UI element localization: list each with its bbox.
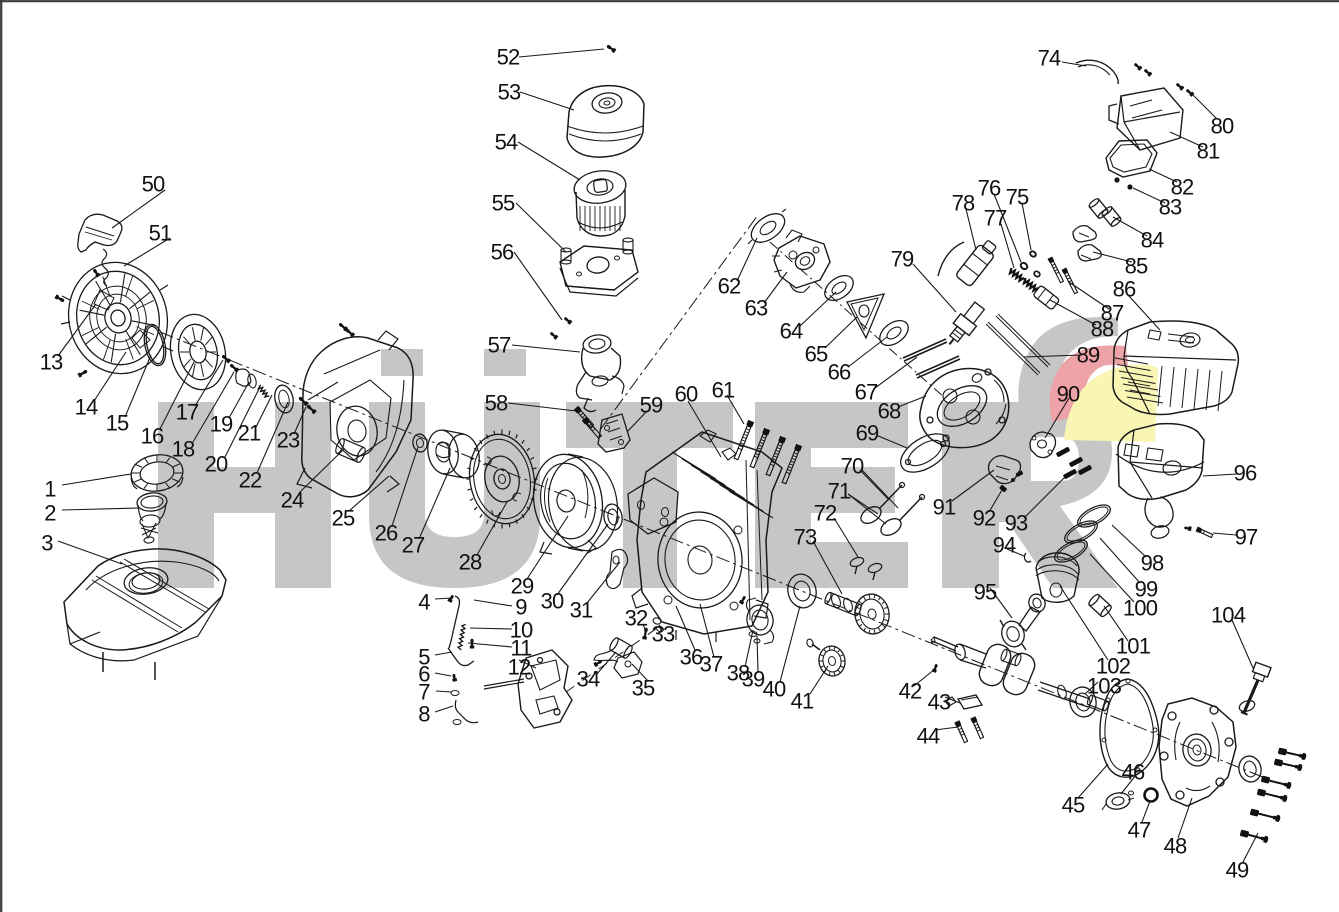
svg-text:57: 57 xyxy=(488,333,511,358)
svg-text:92: 92 xyxy=(973,506,996,531)
svg-text:78: 78 xyxy=(952,191,975,216)
svg-text:3: 3 xyxy=(41,531,53,556)
svg-text:89: 89 xyxy=(1077,343,1100,368)
svg-text:1: 1 xyxy=(44,477,56,502)
svg-text:33: 33 xyxy=(652,622,675,647)
svg-text:46: 46 xyxy=(1122,760,1145,785)
svg-text:29: 29 xyxy=(511,574,534,599)
svg-text:31: 31 xyxy=(570,598,593,623)
svg-text:100: 100 xyxy=(1123,596,1158,621)
svg-text:95: 95 xyxy=(974,580,997,605)
svg-text:80: 80 xyxy=(1211,114,1234,139)
svg-text:14: 14 xyxy=(75,395,98,420)
svg-text:32: 32 xyxy=(625,606,648,631)
svg-text:43: 43 xyxy=(928,690,951,715)
svg-text:77: 77 xyxy=(984,206,1007,231)
svg-text:41: 41 xyxy=(791,689,814,714)
svg-text:72: 72 xyxy=(814,501,837,526)
svg-text:34: 34 xyxy=(577,667,600,692)
svg-text:28: 28 xyxy=(459,550,482,575)
svg-text:21: 21 xyxy=(238,421,261,446)
svg-text:16: 16 xyxy=(141,424,164,449)
svg-text:42: 42 xyxy=(899,679,922,704)
svg-text:22: 22 xyxy=(239,468,262,493)
svg-text:49: 49 xyxy=(1226,858,1249,883)
svg-text:8: 8 xyxy=(418,702,430,727)
svg-text:63: 63 xyxy=(745,296,768,321)
svg-text:73: 73 xyxy=(794,525,817,550)
svg-text:27: 27 xyxy=(402,533,425,558)
svg-text:25: 25 xyxy=(332,506,355,531)
svg-text:83: 83 xyxy=(1159,195,1182,220)
svg-text:59: 59 xyxy=(640,393,663,418)
svg-text:55: 55 xyxy=(492,191,515,216)
svg-text:2: 2 xyxy=(44,501,56,526)
svg-text:64: 64 xyxy=(780,319,803,344)
svg-text:4: 4 xyxy=(418,590,430,615)
svg-text:103: 103 xyxy=(1087,674,1122,699)
svg-text:90: 90 xyxy=(1057,382,1080,407)
svg-text:75: 75 xyxy=(1006,185,1029,210)
svg-text:40: 40 xyxy=(763,677,786,702)
svg-text:67: 67 xyxy=(855,380,878,405)
svg-text:24: 24 xyxy=(281,488,304,513)
svg-text:85: 85 xyxy=(1125,254,1148,279)
svg-text:76: 76 xyxy=(978,176,1001,201)
svg-text:69: 69 xyxy=(856,421,879,446)
svg-text:62: 62 xyxy=(718,274,741,299)
svg-text:18: 18 xyxy=(172,437,195,462)
svg-text:30: 30 xyxy=(541,589,564,614)
svg-text:61: 61 xyxy=(712,378,735,403)
svg-text:97: 97 xyxy=(1235,525,1258,550)
svg-text:96: 96 xyxy=(1234,461,1257,486)
svg-text:94: 94 xyxy=(993,533,1016,558)
svg-text:104: 104 xyxy=(1211,603,1246,628)
svg-text:58: 58 xyxy=(485,391,508,416)
svg-text:50: 50 xyxy=(142,172,165,197)
svg-text:66: 66 xyxy=(828,360,851,385)
svg-text:54: 54 xyxy=(495,130,518,155)
svg-text:65: 65 xyxy=(805,342,828,367)
svg-text:81: 81 xyxy=(1197,139,1220,164)
svg-text:48: 48 xyxy=(1164,834,1187,859)
svg-text:56: 56 xyxy=(491,240,514,265)
svg-text:51: 51 xyxy=(149,221,172,246)
svg-text:26: 26 xyxy=(375,521,398,546)
svg-text:19: 19 xyxy=(210,412,233,437)
svg-text:98: 98 xyxy=(1141,551,1164,576)
svg-text:91: 91 xyxy=(933,495,956,520)
svg-text:74: 74 xyxy=(1038,46,1061,71)
svg-text:39: 39 xyxy=(742,667,765,692)
svg-text:44: 44 xyxy=(917,724,940,749)
svg-text:60: 60 xyxy=(675,382,698,407)
svg-text:88: 88 xyxy=(1091,317,1114,342)
svg-text:68: 68 xyxy=(878,399,901,424)
svg-text:52: 52 xyxy=(497,45,520,70)
svg-text:13: 13 xyxy=(40,350,63,375)
svg-text:86: 86 xyxy=(1113,277,1136,302)
svg-text:70: 70 xyxy=(841,454,864,479)
svg-text:20: 20 xyxy=(205,452,228,477)
svg-text:84: 84 xyxy=(1141,228,1164,253)
svg-text:53: 53 xyxy=(498,80,521,105)
svg-text:12: 12 xyxy=(508,655,531,680)
svg-text:45: 45 xyxy=(1062,793,1085,818)
svg-text:37: 37 xyxy=(700,652,723,677)
svg-text:47: 47 xyxy=(1128,818,1151,843)
svg-text:23: 23 xyxy=(277,428,300,453)
svg-text:35: 35 xyxy=(632,676,655,701)
svg-text:79: 79 xyxy=(891,247,914,272)
svg-text:15: 15 xyxy=(106,411,129,436)
svg-text:17: 17 xyxy=(176,400,199,425)
